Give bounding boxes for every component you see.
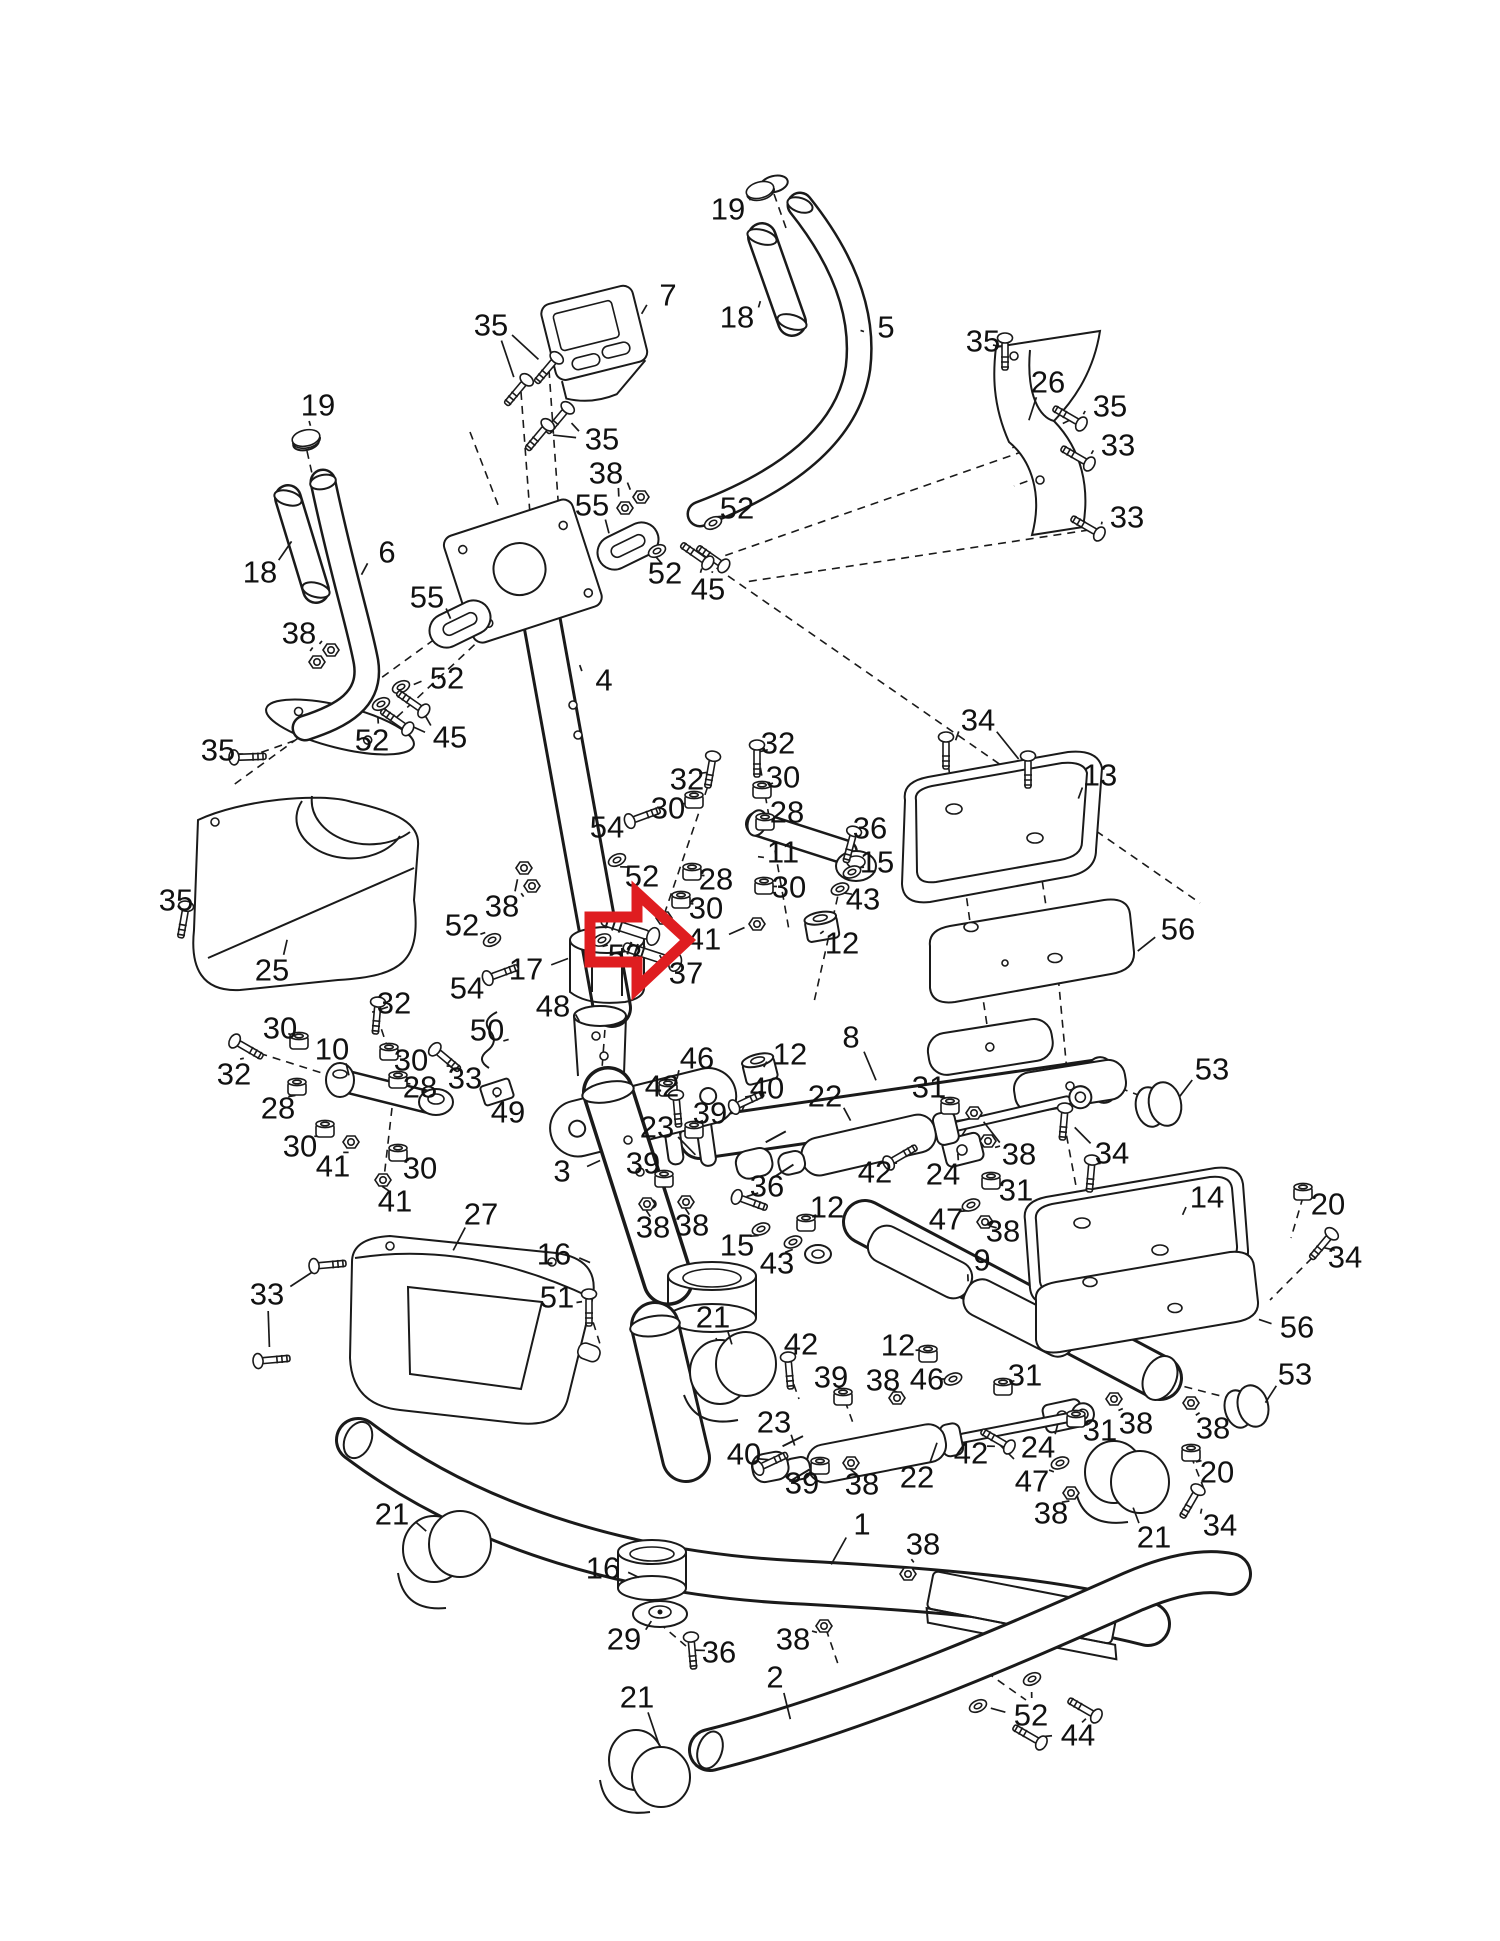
washer-hardware-icon: [482, 931, 503, 949]
part-number-label: 38: [1034, 1496, 1068, 1531]
part-number-label: 38: [282, 616, 316, 651]
part-number-label: 30: [772, 870, 806, 905]
nut-hardware-icon: [749, 918, 765, 930]
roller-21: [398, 1511, 491, 1608]
part-number-label: 42: [954, 1436, 988, 1471]
nut-hardware-icon: [678, 1196, 694, 1208]
part-number-label: 38: [906, 1527, 940, 1562]
leader-line: [268, 1311, 269, 1347]
part-number-label: 40: [750, 1071, 784, 1106]
part-number-label: 40: [727, 1437, 761, 1472]
leader-line: [414, 681, 422, 684]
nut-hardware-icon: [617, 502, 633, 514]
part-number-label: 27: [464, 1197, 498, 1232]
part-number-label: 15: [720, 1228, 754, 1263]
part-number-label: 28: [261, 1091, 295, 1126]
part-number-label: 46: [910, 1362, 944, 1397]
part-number-label: 33: [1110, 500, 1144, 535]
nut-hardware-icon: [816, 1620, 832, 1632]
part-number-label: 38: [866, 1363, 900, 1398]
part-number-label: 15: [860, 845, 894, 880]
part-number-label: 16: [586, 1551, 620, 1586]
part-number-label: 9: [973, 1243, 990, 1278]
part-number-label: 22: [900, 1460, 934, 1495]
inner-tube-48: [574, 1006, 626, 1076]
leader-line: [642, 305, 647, 314]
leader-line: [512, 335, 538, 359]
leader-line: [576, 1302, 582, 1303]
bush-hardware-icon: [316, 1120, 334, 1137]
bush-hardware-icon: [982, 1172, 1000, 1189]
nut-hardware-icon: [639, 1198, 655, 1210]
part-number-label: 54: [450, 971, 484, 1006]
bush-hardware-icon: [685, 791, 703, 808]
leader-line: [759, 301, 761, 307]
leader-line: [290, 1271, 314, 1287]
part-number-label: 41: [378, 1184, 412, 1219]
nut-hardware-icon: [309, 656, 325, 668]
part-number-label: 25: [255, 953, 289, 988]
part-number-label: 34: [961, 703, 995, 738]
leader-line: [1091, 450, 1093, 454]
part-number-label: 30: [689, 891, 723, 926]
part-number-label: 51: [540, 1280, 574, 1315]
leader-line: [1049, 1470, 1054, 1472]
part-number-label: 38: [636, 1210, 670, 1245]
part-number-label: 1: [853, 1507, 870, 1542]
part-number-label: 30: [403, 1151, 437, 1186]
part-number-label: 3: [553, 1154, 570, 1189]
leader-line: [1180, 1080, 1193, 1097]
part-number-label: 35: [1093, 389, 1127, 424]
part-number-label: 10: [315, 1032, 349, 1067]
leader-line: [997, 732, 1019, 759]
part-number-label: 45: [691, 572, 725, 607]
part-number-label: 26: [1031, 365, 1065, 400]
nut-hardware-icon: [966, 1107, 982, 1119]
part-number-label: 23: [757, 1405, 791, 1440]
bolt-hardware-icon: [252, 1351, 290, 1369]
part-number-label: 35: [201, 733, 235, 768]
nut-hardware-icon: [323, 644, 339, 656]
part-number-label: 43: [760, 1246, 794, 1281]
part-number-label: 36: [702, 1635, 736, 1670]
part-number-label: 52: [355, 723, 389, 758]
leader-line: [551, 958, 568, 964]
nut-hardware-icon: [1183, 1397, 1199, 1409]
bolt-hardware-icon: [1055, 1102, 1073, 1140]
washer-hardware-icon: [1022, 1670, 1043, 1688]
part-number-label: 38: [986, 1214, 1020, 1249]
leader-line: [1083, 411, 1085, 414]
leader-line: [572, 423, 579, 431]
washer-hardware-icon: [968, 1697, 989, 1715]
part-number-label: 18: [720, 300, 754, 335]
part-number-label: 33: [250, 1277, 284, 1312]
part-number-label: 6: [378, 535, 395, 570]
bush-hardware-icon: [1182, 1444, 1200, 1461]
part-number-label: 30: [263, 1011, 297, 1046]
part-number-label: 35: [585, 422, 619, 457]
part-number-label: 42: [784, 1327, 818, 1362]
part-number-label: 38: [675, 1208, 709, 1243]
leader-line: [864, 1052, 876, 1081]
part-number-label: 44: [1061, 1718, 1095, 1753]
part-number-label: 55: [410, 580, 444, 615]
part-number-label: 38: [1196, 1411, 1230, 1446]
part-number-label: 41: [316, 1149, 350, 1184]
part-number-label: 18: [243, 555, 277, 590]
part-number-label: 50: [470, 1013, 504, 1048]
bolt-hardware-icon: [521, 416, 556, 454]
part-number-label: 47: [929, 1202, 963, 1237]
leader-line: [480, 933, 485, 935]
roller-21: [600, 1730, 690, 1813]
part-number-label: 49: [491, 1095, 525, 1130]
part-number-label: 35: [966, 324, 1000, 359]
part-number-label: 20: [1311, 1187, 1345, 1222]
part-number-label: 24: [1021, 1430, 1055, 1465]
part-number-label: 52: [648, 556, 682, 591]
leader-line: [861, 330, 864, 331]
bush-hardware-icon: [755, 877, 773, 894]
part-number-label: 21: [375, 1497, 409, 1532]
part-number-label: 31: [1083, 1413, 1117, 1448]
part-number-label: 30: [283, 1129, 317, 1164]
part-number-label: 31: [1008, 1358, 1042, 1393]
part-number-label: 33: [1101, 428, 1135, 463]
part-number-label: 34: [1095, 1136, 1129, 1171]
leader-line: [1101, 522, 1102, 525]
leader-line: [729, 928, 744, 935]
part-number-label: 13: [1083, 758, 1117, 793]
part-number-label: 12: [825, 926, 859, 961]
part-number-label: 8: [842, 1020, 859, 1055]
part-number-label: 4: [595, 663, 612, 698]
side-shield: [193, 798, 418, 990]
part-number-label: 23: [640, 1110, 674, 1145]
console: [539, 284, 656, 409]
nut-hardware-icon: [980, 1135, 996, 1147]
part-number-label: 35: [474, 308, 508, 343]
leader-line: [580, 665, 582, 671]
part-number-label: 39: [814, 1360, 848, 1395]
part-number-label: 52: [625, 859, 659, 894]
part-number-label: 52: [430, 661, 464, 696]
bush-hardware-icon: [672, 891, 690, 908]
leader-line: [1259, 1319, 1272, 1323]
part-number-label: 48: [536, 989, 570, 1024]
leader-line: [553, 435, 576, 438]
part-number-label: 28: [403, 1070, 437, 1105]
part-number-label: 11: [767, 835, 799, 870]
part-number-label: 39: [626, 1146, 660, 1181]
part-number-label: 5: [877, 310, 894, 345]
part-number-label: 52: [720, 491, 754, 526]
part-number-label: 19: [301, 388, 335, 423]
part-number-label: 12: [881, 1328, 915, 1363]
nut-hardware-icon: [524, 880, 540, 892]
exploded-parts-diagram: 1973518535385552524543526353333191865538…: [0, 0, 1500, 1941]
nut-hardware-icon: [516, 862, 532, 874]
leader-line: [1265, 1386, 1276, 1403]
plate-56-upper: [930, 900, 1134, 1003]
part-number-label: 38: [776, 1622, 810, 1657]
part-number-label: 16: [537, 1237, 571, 1272]
part-number-label: 12: [773, 1037, 807, 1072]
leader-line: [521, 893, 523, 896]
leader-line: [812, 1631, 817, 1632]
leader-line: [627, 483, 630, 490]
part-number-label: 24: [926, 1157, 960, 1192]
part-number-label: 52: [445, 908, 479, 943]
part-number-label: 21: [1137, 1520, 1171, 1555]
leader-line: [1075, 1127, 1091, 1143]
part-number-label: 28: [770, 795, 804, 830]
bush-hardware-icon: [1294, 1183, 1312, 1200]
part-number-label: 46: [680, 1041, 714, 1076]
part-number-label: 39: [785, 1466, 819, 1501]
part-number-label: 53: [1278, 1357, 1312, 1392]
part-number-label: 56: [1280, 1310, 1314, 1345]
part-number-label: 36: [750, 1169, 784, 1204]
part-number-label: 30: [766, 760, 800, 795]
bolt-hardware-icon: [939, 732, 954, 769]
part-number-label: 2: [766, 1660, 783, 1695]
part-number-label: 38: [589, 456, 623, 491]
part-number-label: 53: [1195, 1052, 1229, 1087]
part-number-label: 45: [433, 720, 467, 755]
part-number-label: 32: [761, 726, 795, 761]
part-number-label: 34: [1328, 1240, 1362, 1275]
nut-hardware-icon: [1106, 1393, 1122, 1405]
part-number-label: 55: [575, 488, 609, 523]
part-number-label: 20: [1200, 1455, 1234, 1490]
part-number-label: 29: [607, 1622, 641, 1657]
diagram-canvas: 1973518535385552524543526353333191865538…: [0, 0, 1500, 1941]
part-number-label: 22: [808, 1079, 842, 1114]
part-number-label: 36: [853, 811, 887, 846]
part-number-label: 38: [1119, 1406, 1153, 1441]
part-number-label: 33: [448, 1061, 482, 1096]
bolt-hardware-icon: [308, 1256, 346, 1274]
nut-hardware-icon: [633, 491, 649, 503]
part-number-label: 31: [999, 1173, 1033, 1208]
part-number-label: 12: [810, 1190, 844, 1225]
part-number-label: 56: [1161, 912, 1195, 947]
part-number-label: 54: [590, 810, 624, 845]
part-number-label: 32: [217, 1057, 251, 1092]
part-number-label: 38: [1002, 1137, 1036, 1172]
leader-line: [1201, 1509, 1202, 1514]
washer-hardware-icon: [943, 1371, 964, 1387]
part-number-label: 39: [693, 1096, 727, 1131]
bolt-hardware-icon: [500, 371, 535, 409]
leader-line: [320, 641, 322, 644]
bush-hardware-icon: [919, 1345, 937, 1362]
part-number-label: 35: [159, 883, 193, 918]
rear-cover: [994, 331, 1100, 535]
part-number-label: 42: [858, 1155, 892, 1190]
leader-line: [831, 1538, 846, 1565]
leader-line: [587, 1161, 600, 1167]
roller-21: [1076, 1441, 1169, 1523]
nut-hardware-icon: [343, 1136, 359, 1148]
part-number-label: 32: [377, 986, 411, 1021]
leader-line: [501, 341, 513, 378]
part-number-label: 14: [1190, 1180, 1224, 1215]
part-number-label: 31: [912, 1070, 946, 1105]
part-number-label: 21: [620, 1680, 654, 1715]
part-number-label: 38: [485, 889, 519, 924]
leader-line: [991, 1708, 1006, 1712]
leader-line: [995, 1146, 1000, 1147]
part-number-label: 21: [696, 1300, 730, 1335]
leader-line: [361, 563, 367, 574]
nut-hardware-icon: [900, 1568, 916, 1580]
part-number-label: 47: [1015, 1464, 1049, 1499]
part-number-label: 19: [711, 192, 745, 227]
leader-line: [1138, 937, 1155, 951]
part-number-label: 34: [1203, 1508, 1237, 1543]
part-number-label: 7: [659, 278, 676, 313]
leader-line: [758, 857, 764, 858]
part-number-label: 43: [846, 882, 880, 917]
part-number-label: 38: [845, 1467, 879, 1502]
part-number-label: 42: [645, 1069, 679, 1104]
